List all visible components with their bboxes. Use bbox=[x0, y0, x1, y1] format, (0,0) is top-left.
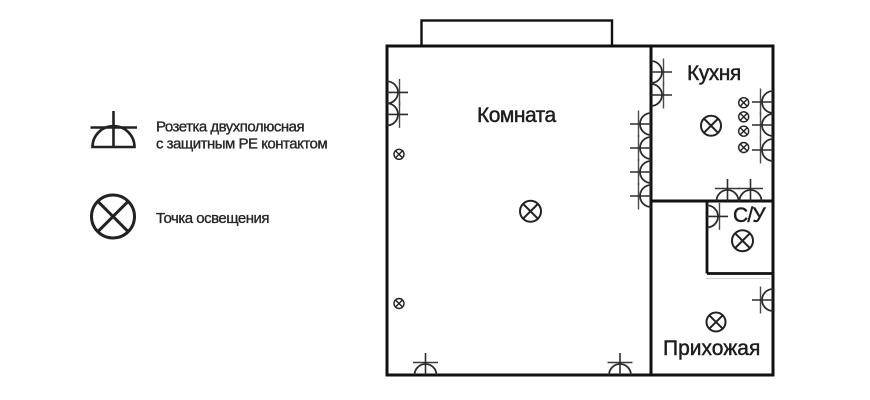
svg-text:Точка освещения: Точка освещения bbox=[156, 210, 269, 227]
svg-text:Кухня: Кухня bbox=[687, 62, 741, 85]
svg-text:С/У: С/У bbox=[733, 204, 766, 227]
svg-text:Прихожая: Прихожая bbox=[663, 337, 760, 360]
svg-text:с защитным PE контактом: с защитным PE контактом bbox=[156, 136, 327, 153]
svg-text:Розетка двухполюсная: Розетка двухполюсная bbox=[156, 119, 305, 136]
svg-text:Комната: Комната bbox=[477, 104, 557, 127]
